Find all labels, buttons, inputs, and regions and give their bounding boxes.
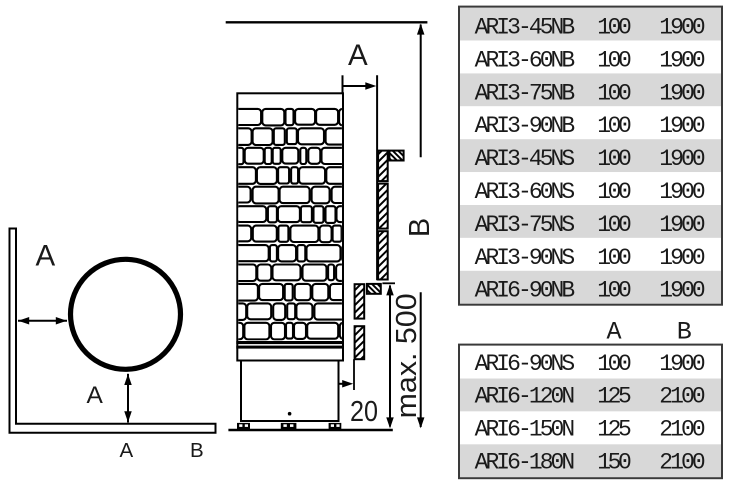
svg-text:B: B [190,439,204,462]
svg-text:100: 100 [597,146,632,172]
svg-text:A: A [348,39,368,72]
svg-text:A: A [606,318,621,347]
svg-text:max. 500: max. 500 [391,293,423,418]
svg-text:A: A [87,382,104,409]
svg-text:2100: 2100 [659,450,705,476]
svg-text:100: 100 [597,47,632,73]
svg-text:125: 125 [597,417,632,443]
svg-text:ARI6-150N: ARI6-150N [475,417,576,443]
svg-text:1900: 1900 [659,212,705,238]
svg-text:1900: 1900 [659,146,705,172]
svg-text:ARI3-45NS: ARI3-45NS [475,146,576,172]
svg-text:1900: 1900 [659,80,705,106]
svg-text:100: 100 [597,113,632,139]
svg-text:1900: 1900 [659,351,705,377]
svg-text:100: 100 [597,245,632,271]
svg-text:ARI3-75NB: ARI3-75NB [475,80,576,106]
svg-text:1900: 1900 [659,278,705,304]
svg-text:1900: 1900 [659,15,705,41]
svg-text:ARI6-120N: ARI6-120N [475,384,576,410]
svg-text:2100: 2100 [659,384,705,410]
svg-text:1900: 1900 [659,179,705,205]
svg-text:100: 100 [597,278,632,304]
svg-text:150: 150 [597,450,632,476]
svg-text:ARI6-90NB: ARI6-90NB [475,278,576,304]
svg-text:ARI3-90NB: ARI3-90NB [475,113,576,139]
svg-text:100: 100 [597,212,632,238]
svg-text:B: B [677,318,692,347]
svg-text:ARI3-60NS: ARI3-60NS [475,179,576,205]
svg-text:100: 100 [597,15,632,41]
svg-text:1900: 1900 [659,47,705,73]
svg-text:1900: 1900 [659,245,705,271]
svg-text:100: 100 [597,351,632,377]
svg-text:125: 125 [597,384,632,410]
svg-text:100: 100 [597,179,632,205]
svg-text:ARI6-180N: ARI6-180N [475,450,576,476]
svg-text:A: A [120,439,134,462]
svg-text:ARI3-45NB: ARI3-45NB [475,15,576,41]
svg-text:ARI3-60NB: ARI3-60NB [475,47,576,73]
svg-text:1900: 1900 [659,113,705,139]
svg-text:20: 20 [350,396,378,428]
svg-text:ARI6-90NS: ARI6-90NS [475,351,576,377]
svg-text:100: 100 [597,80,632,106]
svg-text:ARI3-75NS: ARI3-75NS [475,212,576,238]
svg-text:A: A [36,240,56,273]
svg-text:ARI3-90NS: ARI3-90NS [475,245,576,271]
svg-text:2100: 2100 [659,417,705,443]
svg-text:B: B [404,218,436,237]
